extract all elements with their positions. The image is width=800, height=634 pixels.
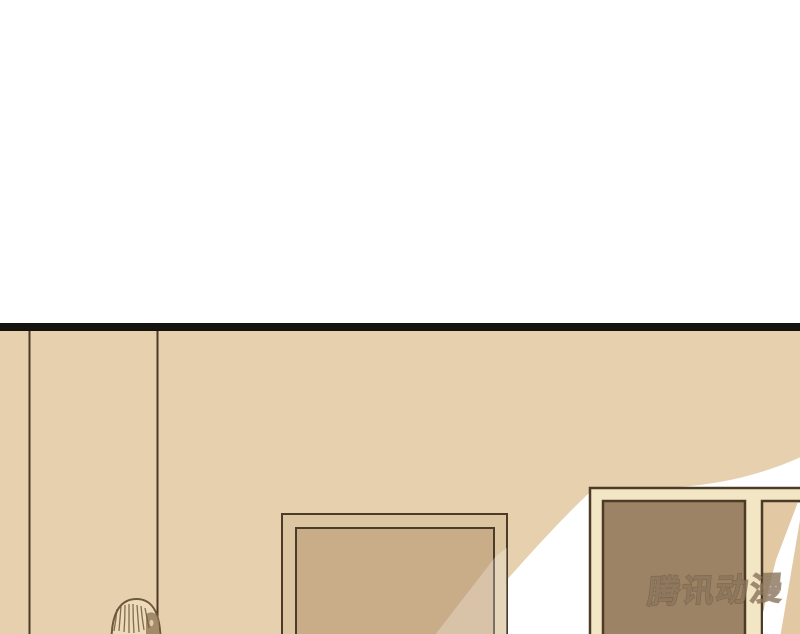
door-frame — [590, 488, 800, 634]
door-panel — [603, 501, 745, 634]
picture-frame — [282, 514, 512, 634]
panel-border-bar — [0, 323, 800, 331]
comic-panel — [0, 0, 800, 634]
character-eye-highlight — [150, 620, 154, 626]
comic-page: 腾讯动漫 — [0, 0, 800, 634]
